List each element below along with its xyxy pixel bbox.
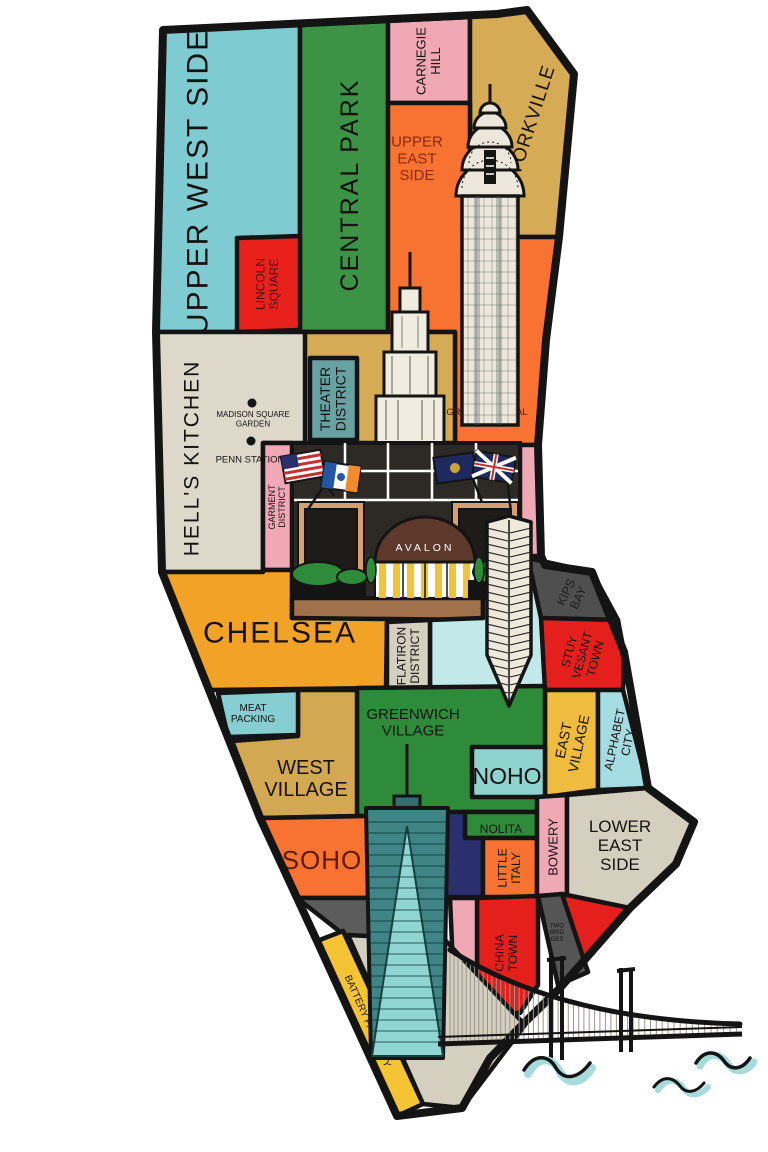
region-carnegie-hill: CARNEGIEHILL	[388, 17, 470, 103]
region-bowery: BOWERY	[537, 795, 567, 897]
region-two-bridges-label: TWOBRIDGES	[550, 923, 565, 942]
avalon-sign: AVALON	[395, 542, 454, 554]
region-theater-district-label: THEATERDISTRICT	[317, 366, 349, 431]
madison-square-garden-dot	[248, 399, 257, 408]
penn-station-dot	[247, 437, 256, 446]
shrub-icon	[366, 557, 376, 583]
shrub-icon	[474, 557, 484, 583]
region-noho: NOHO	[472, 747, 545, 797]
region-meatpacking: MEATPACKING	[218, 690, 298, 737]
region-nolita-label: NOLITA	[480, 822, 522, 836]
region-hells-kitchen-label: HELL'S KITCHEN	[180, 360, 203, 557]
region-east-village: EASTVILLAGE	[545, 690, 598, 797]
region-nolita: NOLITA	[465, 812, 537, 838]
region-flatiron-district: FLATIRONDISTRICT	[387, 620, 430, 688]
chrysler-crown-tier	[480, 103, 500, 113]
penn-station-label: PENN STATION	[216, 454, 285, 465]
entrance-stripe	[379, 562, 386, 598]
empire-state-tier	[392, 312, 428, 354]
entrance-stripe	[449, 562, 456, 598]
flag-canton	[281, 454, 299, 470]
entrance-stripe	[407, 562, 414, 598]
manhattan-map: UPPER WEST SIDECENTRAL PARKLINCOLNSQUARE…	[0, 0, 768, 1152]
region-avalon-forecourt-shape	[292, 598, 483, 620]
region-bowery-label: BOWERY	[546, 818, 561, 876]
region-garment-district-label: GARMENTDISTRICT	[267, 484, 287, 530]
map-canvas: UPPER WEST SIDECENTRAL PARKLINCOLNSQUARE…	[0, 0, 768, 1152]
avalon-building-illustration: AVALON	[281, 443, 520, 598]
chrysler-body	[462, 196, 518, 425]
region-flatiron-district-label: FLATIRONDISTRICT	[395, 627, 422, 685]
region-little-italy: LITTLEITALY	[483, 838, 537, 897]
region-central-park: CENTRAL PARK	[300, 21, 388, 332]
region-avalon-forecourt	[292, 598, 483, 620]
region-little-italy-label: LITTLEITALY	[496, 848, 523, 887]
chrysler-shade-band	[496, 196, 502, 425]
wtc-stripes	[366, 822, 447, 1042]
bridge-tower-cap	[547, 958, 566, 960]
region-noho-label: NOHO	[473, 763, 542, 789]
east-river-waves	[524, 1053, 754, 1094]
chrysler-shade-band	[474, 196, 480, 425]
region-soho-label: SOHO	[282, 845, 363, 875]
region-chinatown-label: CHINATOWN	[493, 934, 520, 971]
region-chelsea-label: CHELSEA	[203, 617, 357, 650]
entrance-stripe	[435, 562, 442, 598]
entrance-stripe	[393, 562, 400, 598]
region-central-park-label: CENTRAL PARK	[336, 79, 364, 292]
brooklyn-bridge-illustration	[438, 950, 742, 1060]
region-lincoln-square-label: LINCOLNSQUARE	[254, 258, 281, 310]
region-lincoln-square: LINCOLNSQUARE	[237, 236, 300, 332]
region-upper-west-side-label: UPPER WEST SIDE	[182, 29, 215, 335]
bush-icon	[337, 569, 367, 585]
region-theater-district: THEATERDISTRICT	[310, 358, 357, 440]
empire-state-tier	[400, 288, 420, 314]
bridge-tower-cap	[617, 969, 635, 971]
chrysler-window-slit	[484, 150, 496, 184]
bush-icon	[292, 562, 344, 586]
